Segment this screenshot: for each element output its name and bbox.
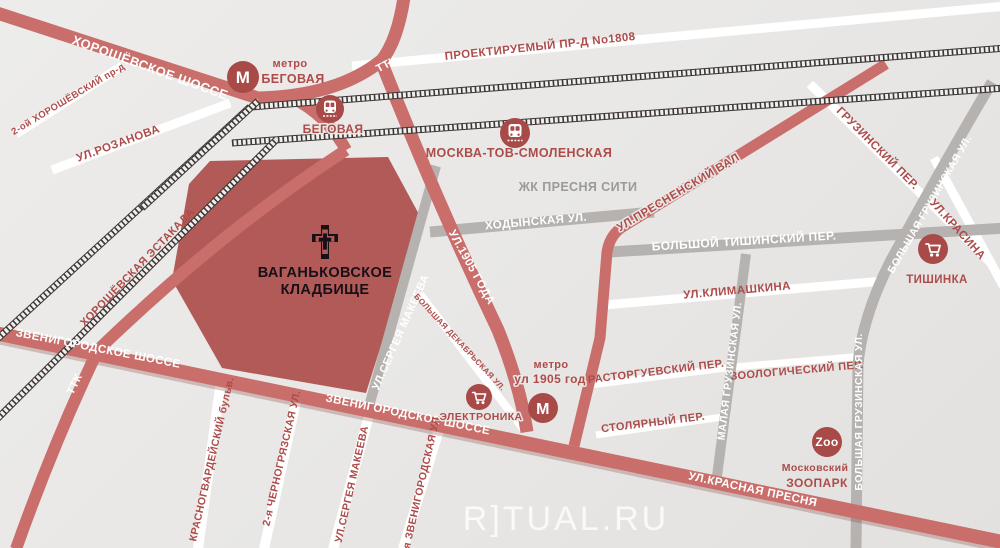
train-icon	[500, 118, 530, 148]
rail-begovaya-name: БЕГОВАЯ	[303, 122, 364, 136]
road-label-krasnogvardeisky: КРАСНОГВАРДЕЙСКИЙ бульв.	[186, 376, 237, 543]
zoo-label-line2: ЗООПАРК	[786, 476, 848, 490]
train-icon	[316, 95, 344, 123]
metro-m-glyph: М	[536, 401, 550, 418]
elektronika-label: ЭЛЕКТРОНИКА	[439, 411, 522, 423]
road-label-rastorguevsky: РАСТОРГУЕВСКИЙ ПЕР.	[587, 357, 725, 387]
road-label-khodynskaya: ХОДЫНСКАЯ УЛ.	[485, 212, 588, 233]
zoo-badge: Zoo	[815, 435, 838, 449]
cemetery-area-map: ХОРОШЁВСКОЕ ШОССЕ 2-ой ХОРОШЁВСКИЙ пр-д …	[0, 0, 1000, 548]
shopping-cart-icon	[918, 234, 948, 264]
road-label-khoroshevsky-proezd: 2-ой ХОРОШЁВСКИЙ пр-д	[9, 60, 127, 137]
road-label-rozanova: УЛ.РОЗАНОВА	[75, 123, 161, 164]
elektronika-group: ЭЛЕКТРОНИКА	[439, 384, 522, 423]
tishinka-label: ТИШИНКА	[906, 274, 968, 286]
road-label-1905-goda: УЛ.1905 ГОДА	[446, 228, 497, 307]
map-canvas: ХОРОШЁВСКОЕ ШОССЕ 2-ой ХОРОШЁВСКИЙ пр-д …	[0, 0, 1000, 548]
metro-begovaya-name: БЕГОВАЯ	[261, 72, 324, 86]
road-label-gruzinsky-per: ГРУЗИНСКИЙ ПЕР.	[834, 104, 922, 192]
road-label-chernogryazskaya: 2-я ЧЕРНОГРЯЗСКАЯ УЛ.	[261, 389, 304, 527]
metro-m-glyph: М	[236, 68, 251, 87]
metro-1905-name: ул 1905 год	[514, 372, 586, 386]
rail-smolenskaya-name: МОСКВА-ТОВ-СМОЛЕНСКАЯ	[426, 146, 613, 160]
ritual-ru-watermark: R]TUAL.RU	[463, 500, 669, 538]
road-label-bolshaya-gruzinskaya-2: БОЛЬШАЯ ГРУЗИНСКАЯ УЛ.	[853, 333, 865, 490]
road-label-khoroshevskoe: ХОРОШЁВСКОЕ ШОССЕ	[70, 32, 230, 102]
road-label-zvenigorodskaya-2ya: 2-я ЗВЕНИГОРОДСКАЯ УЛ.	[398, 413, 443, 548]
road-label-bolshoy-tishinsky: БОЛЬШОЙ ТИШИНСКИЙ ПЕР.	[651, 227, 836, 253]
road-label-stolyarny: СТОЛЯРНЫЙ ПЕР.	[600, 410, 705, 436]
cemetery-name-line2: КЛАДБИЩЕ	[281, 282, 370, 298]
red-roads-layer	[0, 0, 1000, 548]
cemetery-name-line1: ВАГАНЬКОВСКОЕ	[258, 265, 392, 281]
presnya-city-label: ЖК ПРЕСНЯ СИТИ	[518, 180, 638, 194]
zoo-label-line1: Московский	[782, 462, 849, 474]
metro-begovaya-kind: метро	[273, 58, 308, 70]
zoo-group: Zoo Московский ЗООПАРК	[782, 427, 849, 490]
metro-1905-kind: метро	[534, 359, 569, 371]
road-label-sergeya-makeeva-south: УЛ.СЕРГЕЯ МАКЕЕВА	[333, 425, 372, 544]
tishinka-group: ТИШИНКА	[906, 234, 968, 286]
shopping-cart-icon	[466, 384, 492, 410]
